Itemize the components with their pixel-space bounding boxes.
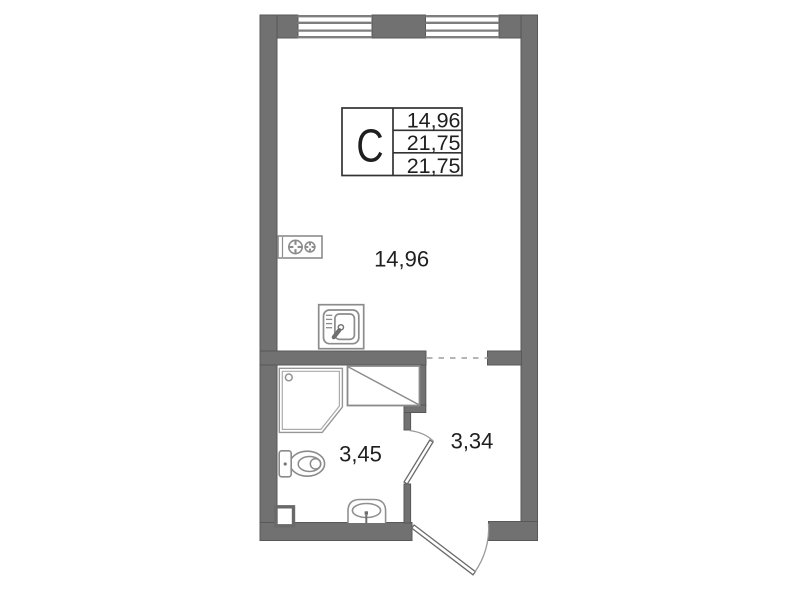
svg-text:3,45: 3,45 <box>339 442 382 467</box>
svg-text:C: C <box>356 120 383 171</box>
svg-text:14,96: 14,96 <box>374 247 429 272</box>
svg-text:21,75: 21,75 <box>407 154 461 178</box>
svg-text:3,34: 3,34 <box>451 429 494 454</box>
svg-text:14,96: 14,96 <box>407 108 461 132</box>
svg-text:21,75: 21,75 <box>407 131 461 155</box>
